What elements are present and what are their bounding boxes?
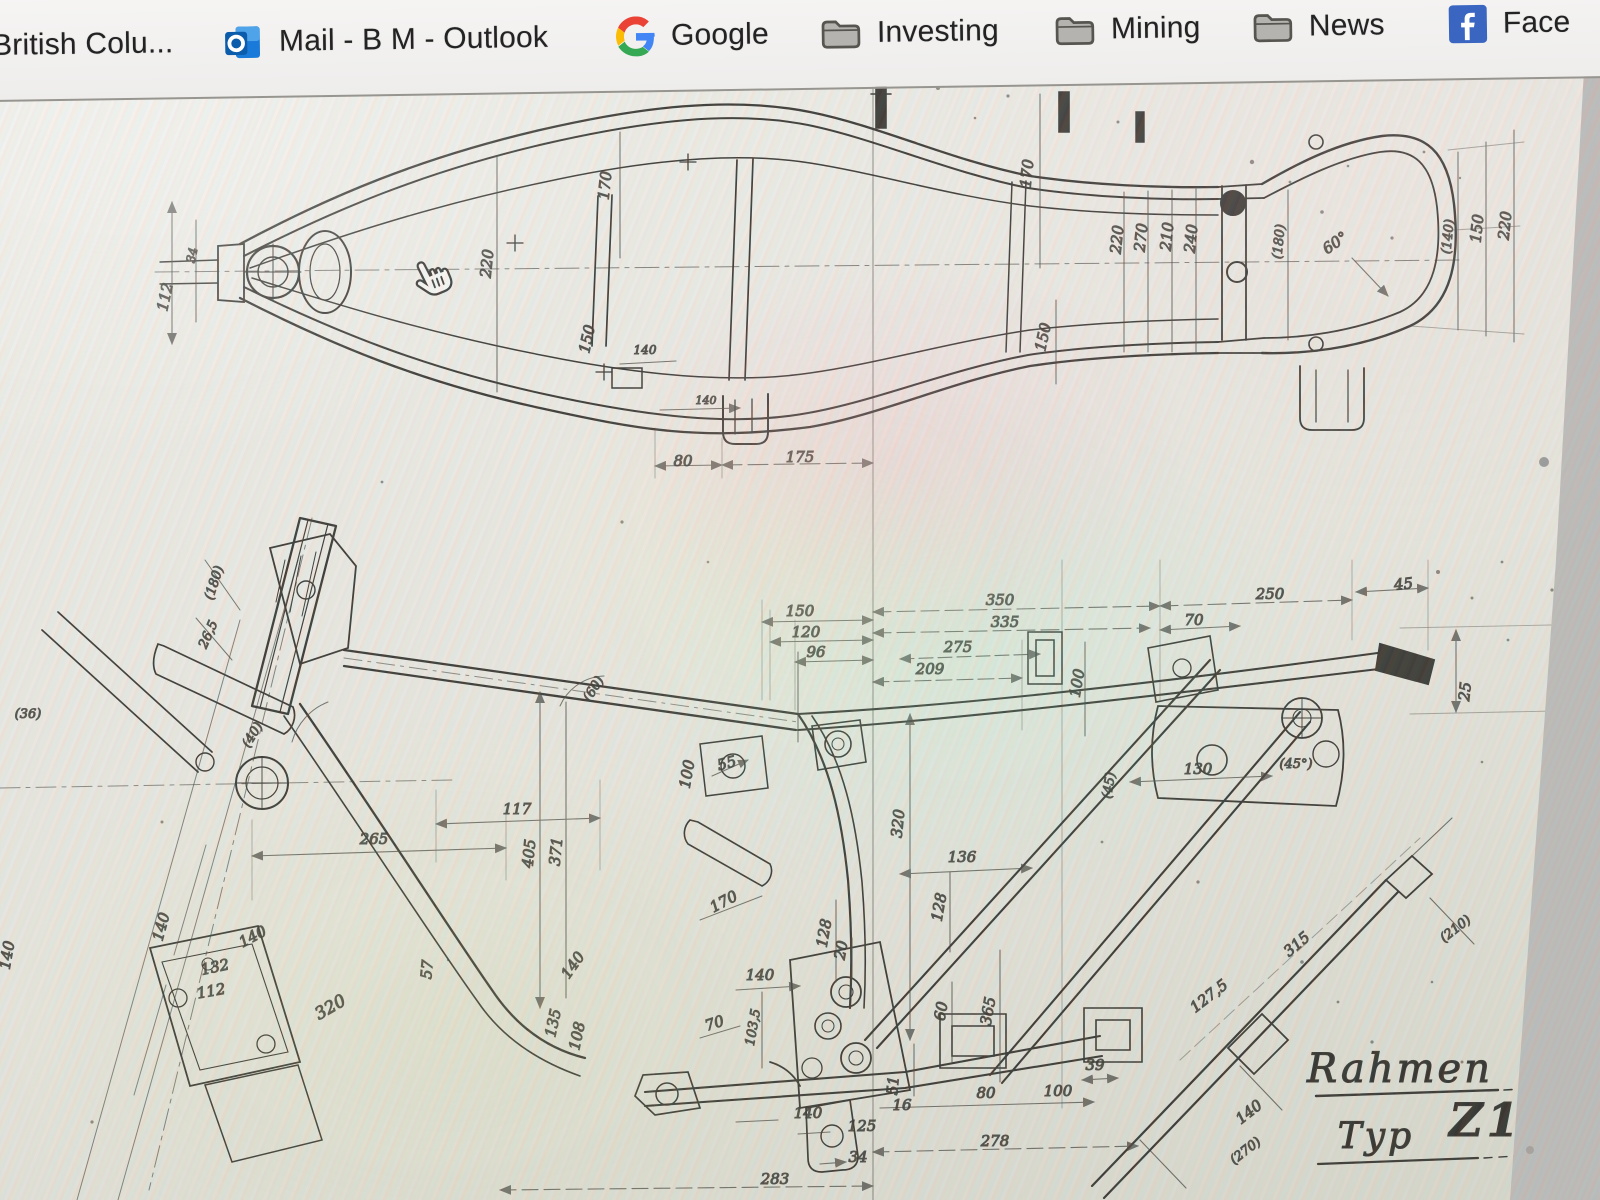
dimension-label: 34: [184, 246, 201, 264]
dimension-label: 170: [1017, 158, 1038, 189]
outlook-icon: [222, 21, 265, 64]
frame-drawing: 1123422017015014014080175170150220270210…: [0, 0, 1600, 1200]
dimension-label: 150: [1467, 213, 1488, 244]
dimension-label: 150: [575, 323, 599, 355]
dimension-label: 70: [1184, 611, 1204, 629]
dimension-label: 39: [1085, 1056, 1105, 1074]
screen-photo: 1123422017015014014080175170150220270210…: [0, 0, 1600, 1200]
dimension-label: 34: [848, 1148, 867, 1166]
dimension-label: 250: [1255, 585, 1285, 603]
dimension-label: 265: [359, 830, 389, 848]
dimension-label: 55: [715, 752, 738, 774]
screen-edge-band: [1510, 0, 1600, 1200]
bookmark-folder-news[interactable]: News: [1252, 3, 1385, 49]
bookmark-label: Investing: [877, 14, 999, 50]
dimension-label: 150: [1031, 321, 1055, 353]
dimension-label: 117: [503, 800, 532, 818]
dimension-label: 103,5: [743, 1008, 764, 1047]
dimension-label: 20: [830, 939, 851, 962]
dimension-label: 371: [546, 836, 567, 866]
dimension-label: 210: [1156, 221, 1177, 253]
dimension-label: 140: [794, 1104, 823, 1122]
bookmark-outlook[interactable]: Mail - B M - Outlook: [222, 16, 549, 65]
dimension-label: 60°: [1319, 228, 1351, 258]
side-view-dimension-labels: (180)26,5(36)(40)(60)1501209620935033527…: [0, 564, 1475, 1188]
dimension-label: (45): [1100, 771, 1119, 800]
dimension-label: 60: [931, 1000, 952, 1022]
dimension-label: 140: [1232, 1096, 1266, 1128]
google-icon: [616, 16, 657, 57]
dimension-label: 132: [199, 955, 231, 979]
dimension-label: 170: [707, 887, 741, 917]
dimension-label: 100: [676, 758, 699, 790]
dimension-label: 108: [565, 1020, 589, 1052]
dimension-label: 127,5: [1186, 976, 1231, 1017]
dimension-label: 16: [892, 1096, 912, 1114]
dimension-label: (180): [1270, 223, 1289, 259]
bookmark-label: Mail - B M - Outlook: [279, 21, 549, 59]
dimension-label: (60): [581, 674, 608, 705]
bookmark-label: Face: [1503, 6, 1571, 41]
drawing-type-code: Z1: [1447, 1093, 1523, 1147]
bookmark-british-columbia[interactable]: British Colu...: [0, 21, 174, 68]
bookmark-folder-investing[interactable]: Investing: [820, 9, 1000, 56]
folder-icon: [820, 12, 863, 55]
dimension-label: 136: [948, 848, 977, 866]
dimension-label: 130: [1184, 760, 1213, 778]
dimension-label: 315: [1280, 928, 1314, 960]
dimension-label: 209: [915, 660, 945, 678]
dimension-label: 365: [977, 995, 1000, 1026]
dimension-label: (36): [15, 707, 42, 722]
bookmark-label: Mining: [1111, 11, 1201, 46]
dimension-label: 283: [760, 1170, 790, 1188]
dimension-label: 350: [986, 591, 1015, 609]
dimension-label: 175: [786, 448, 815, 466]
dimension-label: 80: [976, 1084, 996, 1102]
dimension-label: 80: [673, 452, 693, 470]
drawing-type-label: Typ: [1338, 1116, 1414, 1157]
dimension-label: 320: [888, 808, 909, 839]
bookmark-label: British Colu...: [0, 26, 174, 63]
dimension-label: 120: [792, 623, 821, 641]
dimension-label: 140: [696, 394, 717, 407]
dimension-label: 96: [806, 643, 826, 661]
dimension-label: 335: [991, 613, 1020, 631]
dimension-label: 150: [786, 602, 815, 620]
facebook-icon: [1448, 4, 1489, 45]
dimension-label: 140: [746, 966, 775, 984]
dimension-label: 170: [595, 170, 616, 201]
dimension-label: 125: [848, 1117, 877, 1135]
bookmark-label: News: [1309, 8, 1385, 43]
bookmark-label: Google: [671, 17, 769, 52]
top-view: 1123422017015014014080175170150220270210…: [153, 86, 1524, 478]
dimension-label: (45°): [1279, 757, 1312, 772]
dimension-label: 140: [634, 343, 657, 357]
bookmark-google[interactable]: Google: [616, 12, 770, 58]
dimension-label: 240: [1180, 223, 1201, 255]
dimension-label: 278: [980, 1132, 1010, 1150]
dimension-label: 140: [149, 910, 174, 943]
dimension-label: 128: [928, 891, 951, 922]
dimension-label: 135: [541, 1007, 565, 1039]
dimension-label: 26,5: [196, 618, 222, 651]
dimension-label: 51: [883, 1075, 903, 1096]
dimension-label: 405: [518, 838, 539, 869]
dimension-label: 275: [943, 638, 973, 656]
dimension-label: 320: [311, 991, 349, 1025]
dimension-label: 25: [1455, 681, 1475, 703]
dimension-label: 100: [1044, 1082, 1073, 1100]
dimension-label: 140: [0, 939, 19, 971]
dimension-label: (270): [1227, 1135, 1264, 1168]
dimension-label: 112: [153, 281, 177, 313]
dimension-label: (210): [1437, 913, 1474, 946]
side-view: (180)26,5(36)(40)(60)1501209620935033527…: [0, 518, 1600, 1200]
dimension-label: 220: [1494, 210, 1515, 242]
folder-icon: [1252, 6, 1295, 49]
dimension-label: 270: [1130, 222, 1151, 254]
dimension-label: 220: [1106, 224, 1127, 256]
dimension-label: (180): [202, 564, 227, 602]
folder-icon: [1054, 9, 1097, 52]
dimension-label: 45: [1392, 574, 1414, 594]
bookmark-folder-mining[interactable]: Mining: [1054, 6, 1201, 52]
dimension-label: 57: [417, 959, 437, 980]
dimension-label: 112: [195, 980, 226, 1003]
dimension-label: 140: [557, 948, 588, 982]
hand-cursor-icon[interactable]: [413, 258, 453, 298]
dimension-label: 220: [476, 248, 497, 280]
bookmark-facebook[interactable]: Face: [1448, 1, 1571, 47]
drawing-title: Rahmen: [1306, 1046, 1493, 1092]
